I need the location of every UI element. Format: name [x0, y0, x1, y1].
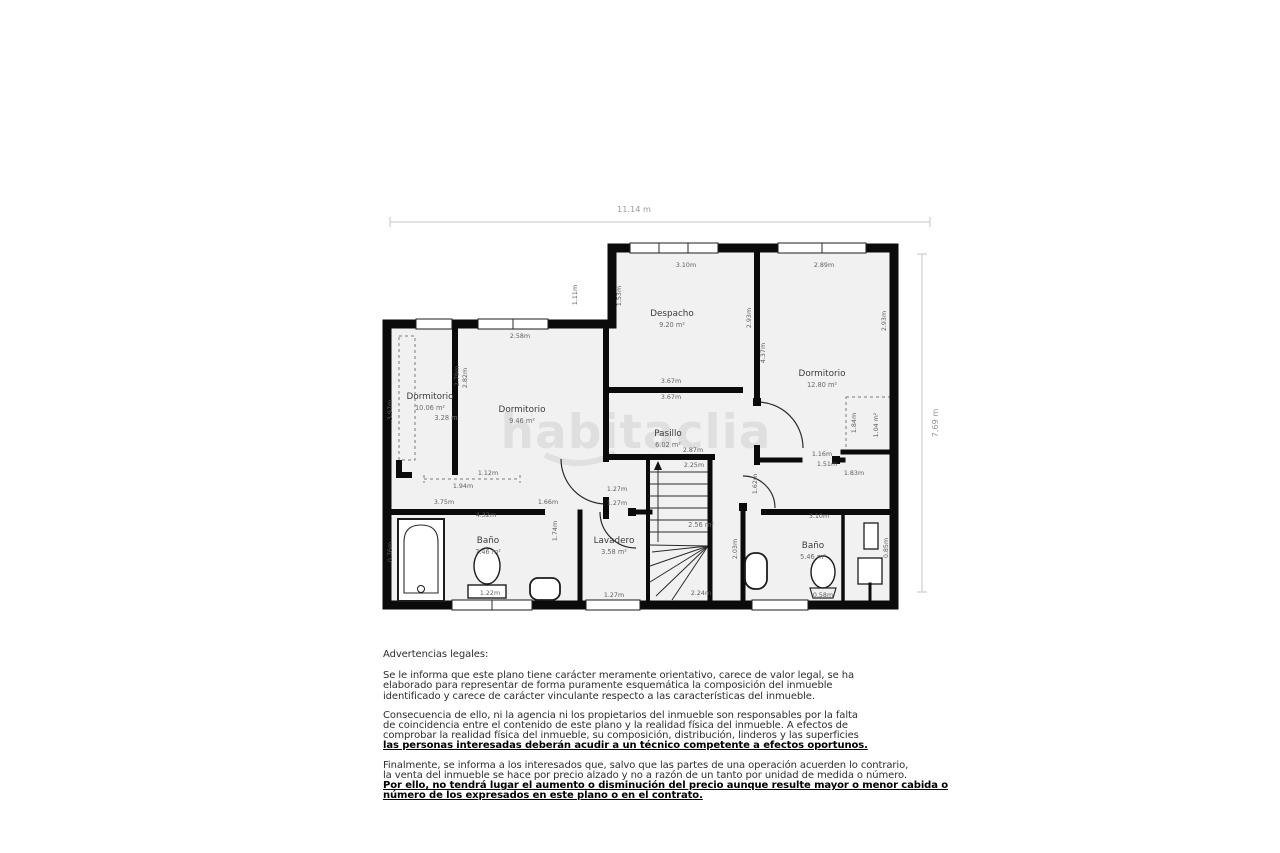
- dimension-label: 3.75m: [434, 499, 454, 506]
- legal-notice: Advertencias legales: Se le informa que …: [383, 650, 1008, 810]
- room-extra: 3.28 m: [434, 414, 457, 422]
- dimension-label: 1.11m: [572, 285, 579, 305]
- room-label: Lavadero: [594, 536, 635, 546]
- legal-heading: Advertencias legales:: [383, 650, 1008, 660]
- legal-paragraphs: Se le informa que este plano tiene carác…: [383, 671, 1008, 801]
- legal-paragraph: Finalmente, se informa a los interesados…: [383, 761, 1008, 802]
- dimension-label: 2.93m: [881, 311, 888, 331]
- dimension-label: 1.04 m²: [873, 412, 880, 437]
- bidet-icon: [745, 553, 767, 589]
- dimension-label: 1.62m: [752, 474, 759, 494]
- dimension-label: 1.74m: [552, 521, 559, 541]
- dimension-label: 2.03m: [732, 539, 739, 559]
- room-label: Baño: [477, 536, 499, 546]
- room-area: 7.46 m²: [475, 548, 501, 556]
- dimension-label: 2.93m: [746, 308, 753, 328]
- dimension-label: 2.25m: [684, 462, 704, 469]
- room-area: 12.80 m²: [807, 381, 837, 389]
- floor-plan: 11.14 m 7.69 m habitaclia: [380, 195, 955, 650]
- legal-line: número de los expresados en este plano o…: [383, 791, 1008, 801]
- room-area: 6.02 m²: [655, 441, 681, 449]
- dimension-label: 0.76m: [387, 542, 394, 562]
- legal-paragraph: Se le informa que este plano tiene carác…: [383, 671, 1008, 702]
- room-area: 9.20 m²: [659, 321, 685, 329]
- dimension-label: 1.94m: [453, 483, 473, 490]
- room-label: Baño: [802, 541, 824, 551]
- dimension-label: 4.32m: [476, 512, 496, 519]
- dimension-label: 1.12m: [478, 470, 498, 477]
- dimension-label: 2.87m: [683, 447, 703, 454]
- room-area: 5.46 m²: [800, 553, 826, 561]
- page: 11.14 m 7.69 m habitaclia: [0, 0, 1280, 853]
- room-label: Pasillo: [654, 429, 682, 439]
- dimension-label: 1.27m: [607, 500, 627, 507]
- dimension-label: 2.58m: [510, 333, 530, 340]
- dimension-label: 1.66m: [538, 499, 558, 506]
- dimension-line-top: 11.14 m: [390, 204, 930, 227]
- room-label: Dormitorio: [407, 392, 454, 402]
- room-area: 2.56 m²: [688, 521, 714, 529]
- bathtub-icon: [398, 519, 444, 601]
- dimension-label: 2.82m: [462, 368, 469, 388]
- legal-paragraph: Consecuencia de ello, ni la agencia ni l…: [383, 711, 1008, 752]
- legal-line: las personas interesadas deberán acudir …: [383, 741, 1008, 751]
- dimension-label: 3.67m: [661, 394, 681, 401]
- room-label: Despacho: [650, 309, 694, 319]
- dimension-label: 1.53m: [616, 286, 623, 306]
- room-area: 9.46 m²: [509, 417, 535, 425]
- dimension-label: 3.97m: [387, 400, 394, 420]
- room-label: Dormitorio: [499, 405, 546, 415]
- dim-top-label: 11.14 m: [617, 204, 651, 214]
- dimension-label: 0.85m: [883, 538, 890, 558]
- room-area: 3.58 m²: [601, 548, 627, 556]
- dimension-line-right: 7.69 m: [917, 254, 940, 592]
- dimension-label: 1.84m: [851, 413, 858, 433]
- toilet-icon: [530, 578, 560, 600]
- dimension-label: 0.58m: [813, 592, 833, 599]
- dimension-label: 2.89m: [814, 262, 834, 269]
- dimension-label: 2.24m: [691, 590, 711, 597]
- dimension-label: 1.16m: [812, 451, 832, 458]
- dimension-label: 3.10m: [676, 262, 696, 269]
- dim-right-label: 7.69 m: [930, 409, 940, 438]
- dimension-label: 1.22m: [480, 590, 500, 597]
- dimension-label: 1.27m: [604, 592, 624, 599]
- dimension-label: 1.51m: [817, 461, 837, 468]
- legal-line: identificado y carece de carácter vincul…: [383, 692, 1008, 702]
- dimension-label: 1.27m: [607, 486, 627, 493]
- dimension-label: 3.67m: [661, 378, 681, 385]
- dimension-label: 1.83m: [844, 470, 864, 477]
- room-area: 10.06 m²: [415, 404, 445, 412]
- room-label: Dormitorio: [799, 369, 846, 379]
- dimension-label: 2.79m: [454, 366, 461, 386]
- dimension-label: 4.37m: [760, 343, 767, 363]
- dimension-label: 3.10m: [809, 513, 829, 520]
